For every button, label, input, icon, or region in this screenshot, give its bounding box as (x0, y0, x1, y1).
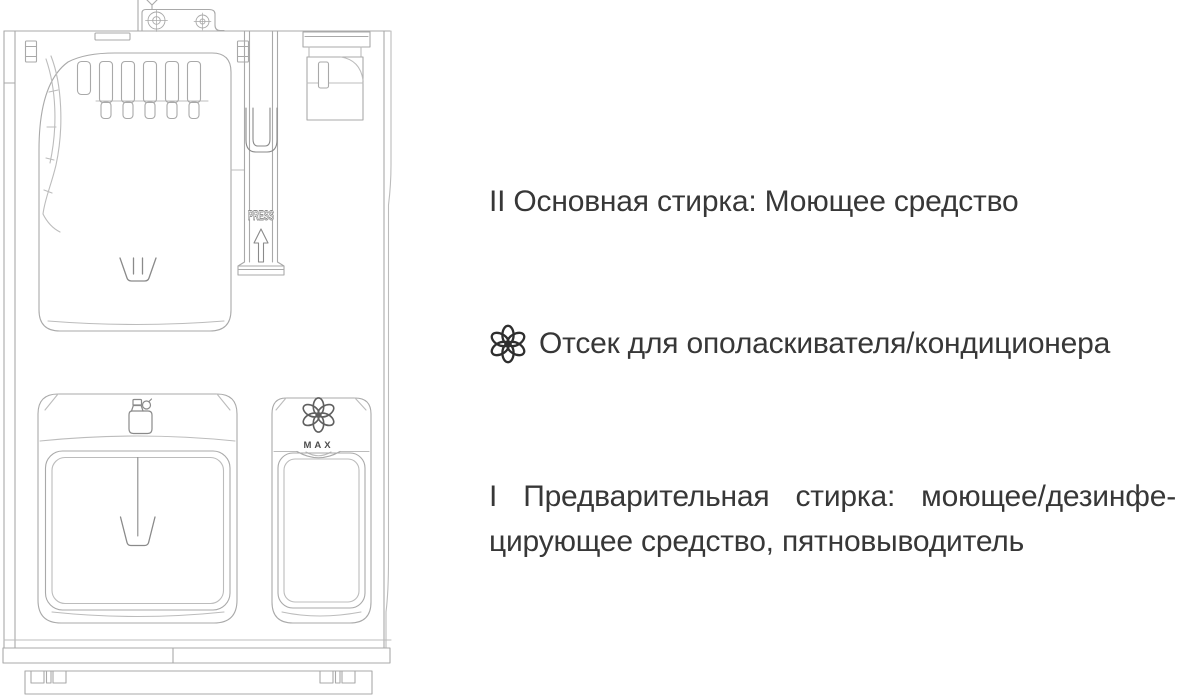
drawer-clips (26, 41, 249, 62)
hinge-screws-icon (146, 10, 212, 32)
hinge-bracket (138, 0, 224, 32)
detergent-bottle-icon (129, 399, 152, 434)
page: PRESS (0, 0, 1177, 695)
press-latch: PRESS (238, 31, 284, 275)
max-level-mark: MAX (303, 440, 333, 451)
caption-main-wash: II Основная стирка: Моющее средство (489, 184, 1019, 219)
caption-softener-text: Отсек для ополаскивателя/кондиционера (539, 326, 1110, 361)
flower-icon (486, 322, 530, 366)
siphon-grill (78, 62, 209, 119)
press-arrow-icon (254, 229, 268, 262)
main-wash-cup-icon (120, 258, 156, 281)
drawer-feet (31, 671, 355, 683)
flower-icon (301, 398, 336, 432)
caption-prewash-line2: цирующее средство, пятновыводитель (489, 519, 1176, 564)
drawer-body-outline (4, 31, 391, 648)
drawer-rail-base (3, 640, 391, 694)
latch-box (303, 32, 370, 120)
softener-compartment: MAX (272, 398, 371, 623)
press-label: PRESS (248, 208, 274, 223)
caption-prewash: I Предварительная стирка: моющее/дезинфе… (489, 474, 1176, 564)
caption-softener: Отсек для ополаскивателя/кондиционера (486, 322, 1110, 366)
caption-prewash-line1: I Предварительная стирка: моющее/дезинфе… (489, 474, 1176, 519)
detergent-drawer-diagram: PRESS (0, 0, 420, 695)
grip-molding (43, 56, 61, 232)
main-wash-compartment (39, 53, 244, 331)
prewash-compartment (38, 394, 237, 623)
